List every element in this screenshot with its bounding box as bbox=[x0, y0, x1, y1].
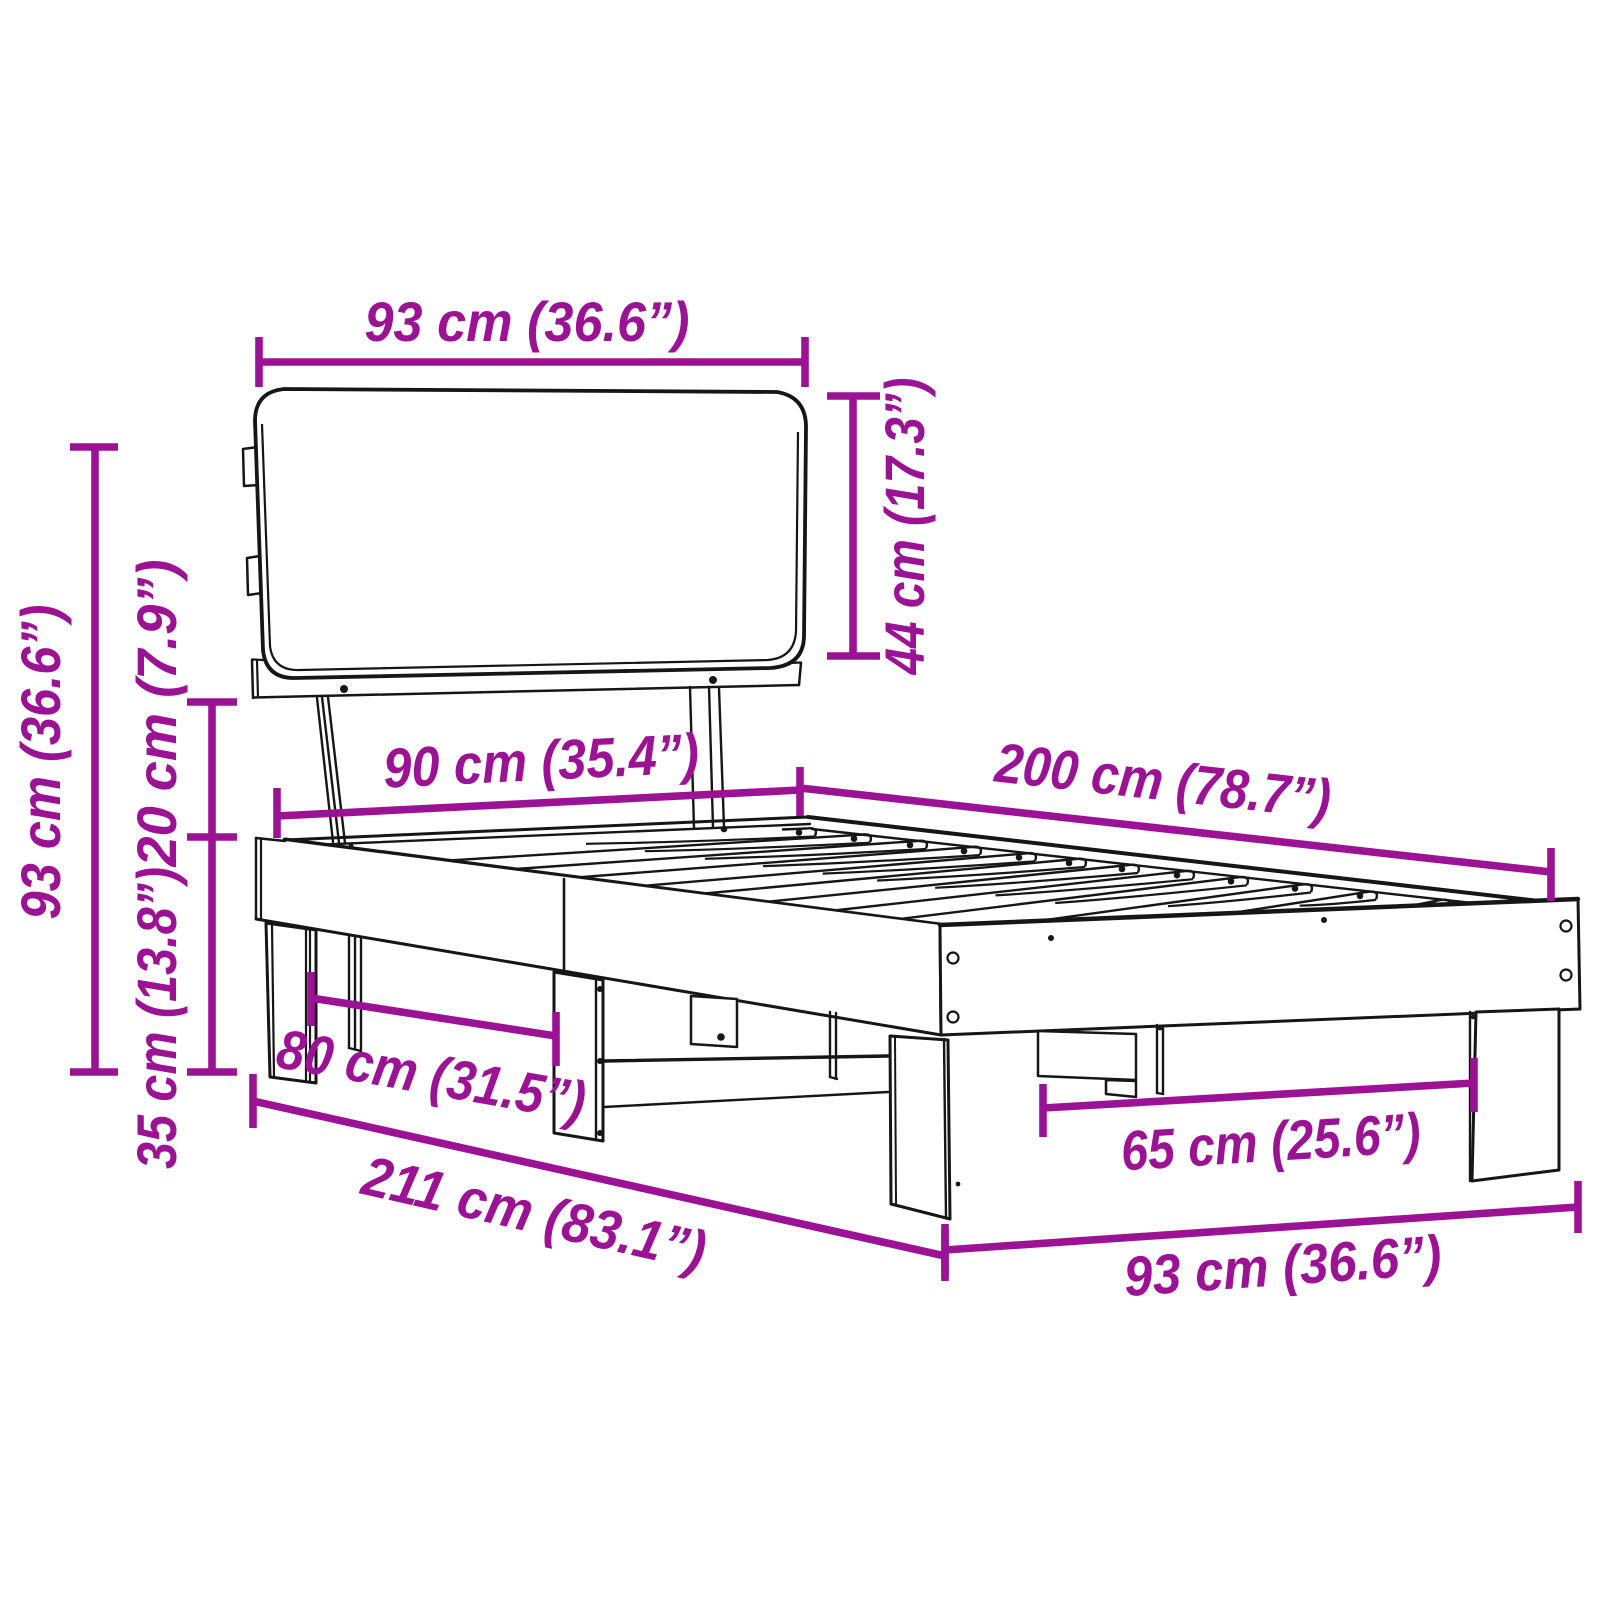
svg-text:35 cm (13.8”): 35 cm (13.8”) bbox=[125, 867, 188, 1169]
svg-text:20 cm (7.9”): 20 cm (7.9”) bbox=[125, 560, 188, 868]
svg-text:93 cm (36.6”): 93 cm (36.6”) bbox=[365, 290, 690, 353]
svg-text:93 cm (36.6”): 93 cm (36.6”) bbox=[9, 605, 72, 920]
svg-text:44 cm (17.3”): 44 cm (17.3”) bbox=[873, 378, 936, 676]
